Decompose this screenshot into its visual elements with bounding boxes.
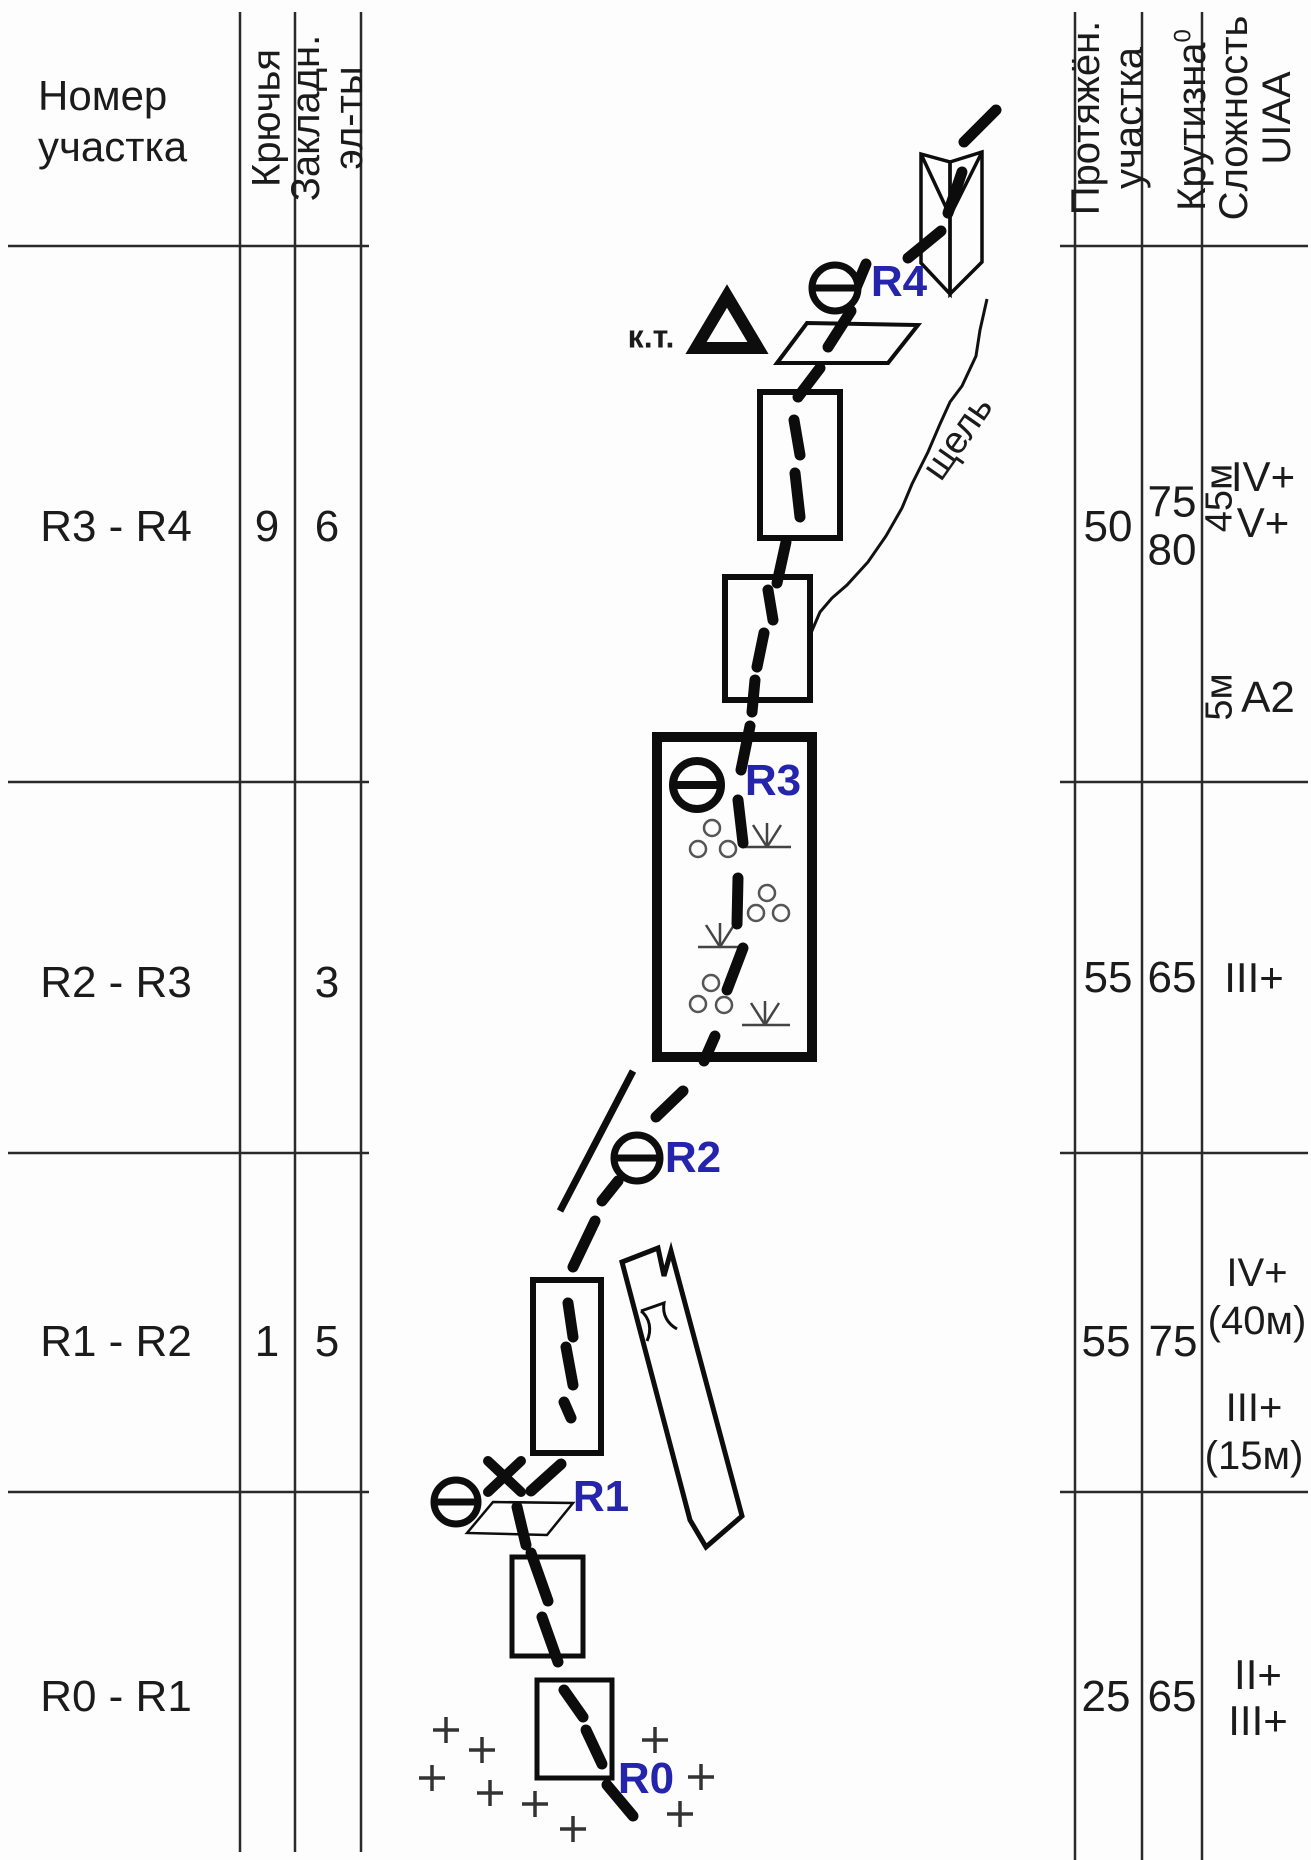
- piton-cross-icon: [488, 1461, 521, 1492]
- difficulty-value: IV+ (40м): [1208, 1249, 1307, 1345]
- belay-label-r3: R3: [745, 757, 801, 805]
- nuts-value: 6: [315, 503, 339, 551]
- dihedral-book: [921, 152, 982, 294]
- steepness-value: 65: [1148, 1673, 1197, 1721]
- difficulty-value: III+ (15м): [1205, 1384, 1304, 1480]
- header-pitons-column: Крючья: [245, 49, 288, 187]
- control-point-triangle-icon: [696, 296, 758, 348]
- header-difficulty-column: Сложность UIAA: [1213, 16, 1299, 221]
- section-label: R2 - R3: [40, 959, 192, 1007]
- route-topo-page: Номер участка Крючья Закладн. эл-ты Прот…: [0, 0, 1311, 1860]
- length-value: 50: [1084, 503, 1133, 551]
- belay-label-r1: R1: [573, 1473, 629, 1521]
- difficulty-length-rotated: 5м: [1199, 673, 1240, 720]
- nuts-value: 3: [315, 959, 339, 1007]
- section-label: R3 - R4: [40, 503, 192, 551]
- header-nuts-column: Закладн. эл-ты: [285, 35, 371, 201]
- pitons-value: 1: [255, 1318, 279, 1366]
- steepness-value: 65: [1148, 954, 1197, 1002]
- nuts-value: 5: [315, 1318, 339, 1366]
- topo-diagram: [0, 0, 1311, 1860]
- difficulty-value: A2: [1241, 674, 1295, 722]
- steepness-degree-sup: 0: [1170, 29, 1197, 42]
- belay-icon-r4: [812, 265, 858, 311]
- belay-icon-r2: [614, 1135, 660, 1181]
- couloir-band: [622, 1248, 742, 1547]
- header-steepness-column: Крутизна0: [1128, 29, 1215, 211]
- belay-label-r4: R4: [871, 258, 927, 306]
- length-value: 55: [1082, 1318, 1131, 1366]
- difficulty-value: III+: [1224, 955, 1284, 1001]
- length-value: 25: [1082, 1673, 1131, 1721]
- pitons-value: 9: [255, 503, 279, 551]
- header-section-column: Номер участка: [38, 70, 187, 172]
- control-point-label: к.т.: [628, 319, 675, 354]
- rock-features: [467, 152, 982, 1778]
- section-label: R0 - R1: [40, 1673, 192, 1721]
- difficulty-value: IV+ V+: [1231, 454, 1295, 546]
- section-label: R1 - R2: [40, 1318, 192, 1366]
- steepness-header-text: Крутизна: [1170, 42, 1214, 210]
- length-value: 55: [1084, 954, 1133, 1002]
- steepness-value: 75: [1149, 1318, 1198, 1366]
- steepness-value: 75 80: [1148, 479, 1197, 576]
- belay-icon-r3: [673, 761, 721, 809]
- belay-icon-r1: [434, 1480, 478, 1524]
- start-label-r0: R0: [618, 1755, 674, 1803]
- difficulty-value: II+ III+: [1228, 1652, 1288, 1744]
- ledge-parallelogram-r4: [777, 323, 918, 363]
- belay-label-r2: R2: [665, 1134, 721, 1182]
